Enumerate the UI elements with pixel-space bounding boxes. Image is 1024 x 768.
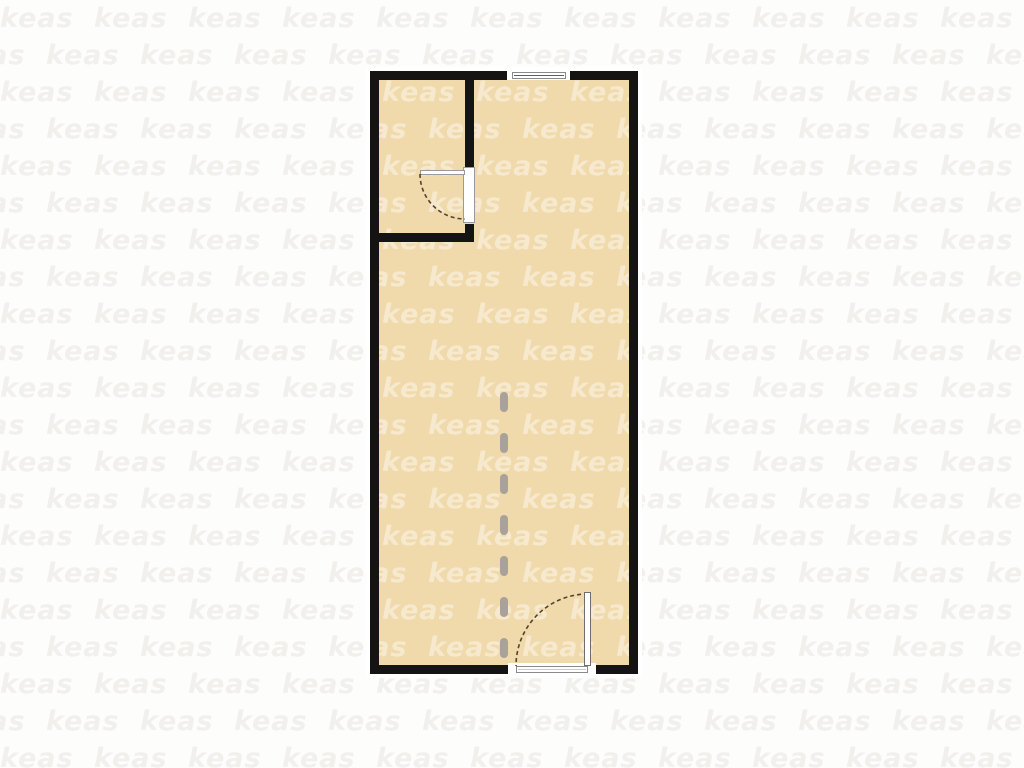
outer-wall-top	[370, 71, 638, 80]
door1-swing-arc-icon	[416, 167, 476, 227]
interior-wall-vertical	[465, 80, 474, 168]
outer-wall-right	[629, 71, 638, 674]
outer-wall-left	[370, 71, 379, 674]
door2-swing-arc-icon	[506, 587, 588, 669]
door2-leaf	[584, 592, 591, 666]
floorplan: keas keas keas keas keas keas keas keas …	[366, 67, 642, 678]
interior-wall-horizontal	[379, 233, 474, 242]
window-icon	[512, 72, 566, 79]
outer-wall-bottom	[370, 665, 638, 674]
